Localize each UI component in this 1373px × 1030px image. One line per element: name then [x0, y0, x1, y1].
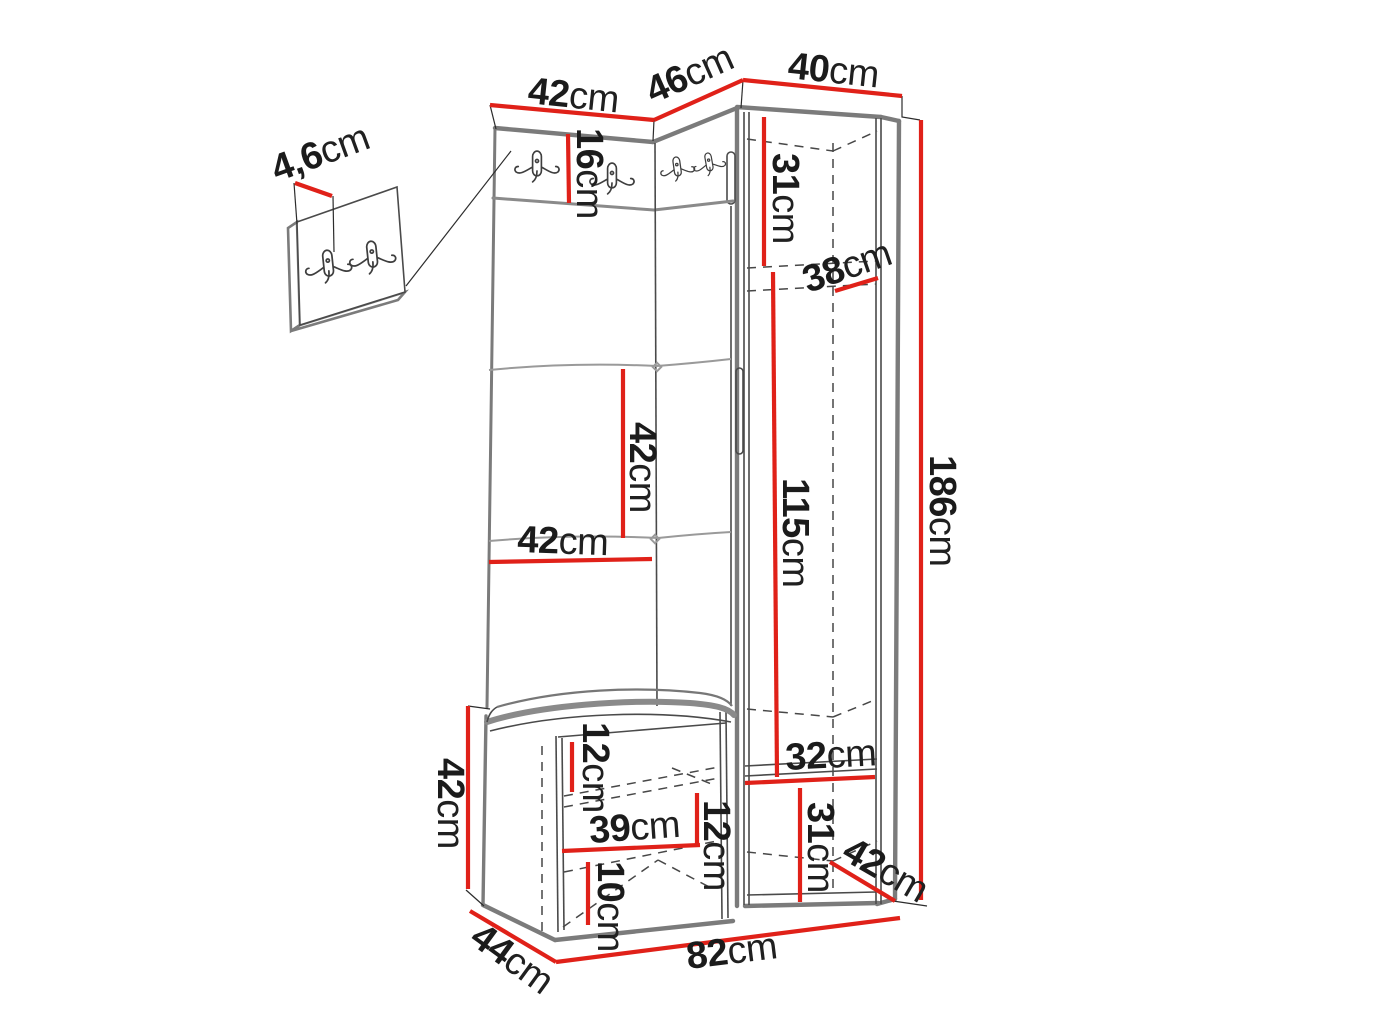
dimension-label-panel-square-width: 42cm [517, 519, 609, 564]
dimension-label-top-left-width: 42cm [526, 70, 621, 121]
dimension-label-cabinet-top-width: 40cm [786, 45, 881, 96]
dimension-label-bench-depth: 44cm [463, 915, 561, 1002]
dimension-label-bench-middle-gap: 12cm [695, 800, 737, 891]
furniture-dimension-diagram: 42cm46cm40cm4,6cm16cm31cm38cm186cm42cm42… [0, 0, 1373, 1030]
bench-back-left-edge [483, 716, 486, 905]
dimension-label-hook-rail-height: 16cm [568, 128, 610, 219]
diagram-page: 42cm46cm40cm4,6cm16cm31cm38cm186cm42cm42… [0, 0, 1373, 1030]
dimension-label-cabinet-inner-height: 115cm [774, 478, 816, 587]
angled-panel-face [653, 108, 737, 905]
dimension-label-bench-bottom-gap: 10cm [589, 861, 631, 952]
detail-hook-panel [288, 151, 511, 331]
dimension-label-cabinet-top-section-height: 31cm [764, 153, 806, 244]
dimension-label-total-width: 82cm [684, 925, 779, 978]
dimension-label-panel-square-height: 42cm [621, 422, 663, 513]
wardrobe-body [487, 107, 899, 905]
dimension-label-bench-height: 42cm [429, 758, 471, 849]
dimension-label-bench-seat-offset: 12cm [574, 722, 616, 813]
dimension-label-detail-panel-thickness: 4,6cm [266, 116, 375, 190]
dimension-label-top-angled-width: 46cm [640, 37, 740, 112]
dimension-label-bench-inner-width: 39cm [588, 804, 682, 852]
dimension-line-detail-panel-thickness [295, 183, 332, 196]
dimension-label-total-height: 186cm [921, 455, 963, 567]
dimension-label-compartment-width: 32cm [784, 732, 877, 779]
dimension-label-compartment-height: 31cm [799, 802, 841, 893]
detail-panel-face [297, 187, 405, 325]
